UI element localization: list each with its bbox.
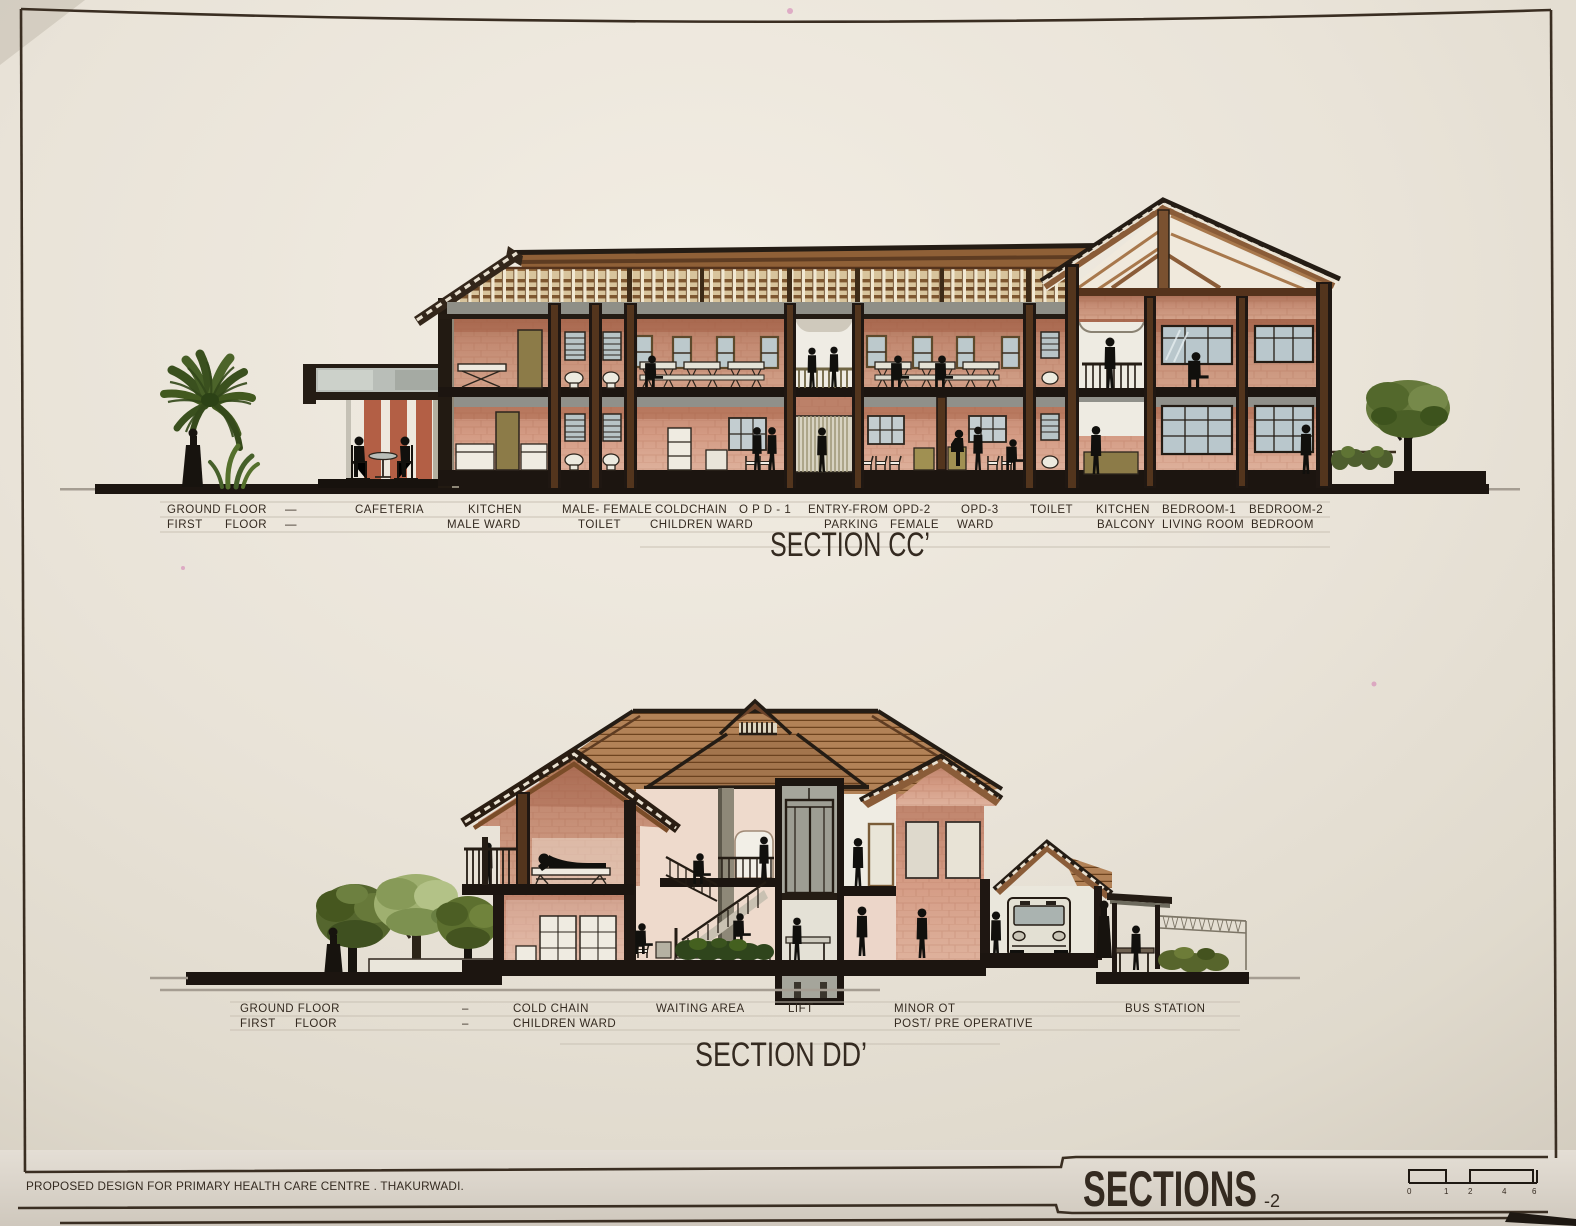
svg-text:MALE- FEMALE: MALE- FEMALE — [562, 504, 652, 516]
svg-text:CHILDREN WARD: CHILDREN WARD — [513, 1018, 616, 1030]
svg-text:–: – — [462, 1003, 469, 1015]
svg-text:OPD-3: OPD-3 — [961, 504, 999, 516]
svg-text:OPD-2: OPD-2 — [893, 504, 931, 516]
svg-text:PROPOSED DESIGN FOR PRIMARY H: PROPOSED DESIGN FOR PRIMARY HEALTH CARE … — [26, 1179, 464, 1193]
svg-text:-2: -2 — [1264, 1191, 1280, 1211]
svg-text:O P D - 1: O P D - 1 — [739, 504, 791, 516]
svg-text:COLDCHAIN: COLDCHAIN — [655, 504, 727, 516]
svg-text:TOILET: TOILET — [578, 519, 621, 531]
svg-text:BALCONY: BALCONY — [1097, 519, 1155, 531]
svg-text:SECTION CC’: SECTION CC’ — [770, 526, 930, 564]
svg-text:1: 1 — [1444, 1187, 1449, 1196]
svg-text:WAITING AREA: WAITING AREA — [656, 1003, 745, 1015]
svg-text:BEDROOM-2: BEDROOM-2 — [1249, 504, 1323, 516]
svg-text:SECTIONS: SECTIONS — [1083, 1161, 1257, 1217]
svg-text:SECTION DD’: SECTION DD’ — [695, 1036, 867, 1074]
svg-text:CAFETERIA: CAFETERIA — [355, 504, 424, 516]
svg-text:—: — — [285, 519, 297, 531]
svg-text:—: — — [285, 504, 297, 516]
svg-text:GROUND FLOOR: GROUND FLOOR — [240, 1003, 340, 1015]
svg-text:MINOR OT: MINOR OT — [894, 1003, 956, 1015]
svg-text:FLOOR: FLOOR — [295, 1018, 337, 1030]
svg-text:FIRST: FIRST — [167, 519, 203, 531]
svg-text:4: 4 — [1502, 1187, 1507, 1196]
svg-text:FLOOR: FLOOR — [225, 519, 267, 531]
svg-text:2: 2 — [1468, 1187, 1473, 1196]
svg-text:ENTRY-FROM: ENTRY-FROM — [808, 504, 888, 516]
svg-text:BUS STATION: BUS STATION — [1125, 1003, 1205, 1015]
svg-text:WARD: WARD — [957, 519, 994, 531]
svg-text:MALE WARD: MALE WARD — [447, 519, 521, 531]
svg-text:FIRST: FIRST — [240, 1018, 276, 1030]
svg-text:0: 0 — [1407, 1187, 1412, 1196]
svg-text:KITCHEN: KITCHEN — [468, 504, 522, 516]
svg-text:LIFT: LIFT — [788, 1003, 814, 1015]
svg-text:COLD CHAIN: COLD CHAIN — [513, 1003, 589, 1015]
svg-text:KITCHEN: KITCHEN — [1096, 504, 1150, 516]
svg-text:LIVING ROOM: LIVING ROOM — [1162, 519, 1244, 531]
svg-text:–: – — [462, 1018, 469, 1030]
svg-text:6: 6 — [1532, 1187, 1537, 1196]
svg-text:BEDROOM: BEDROOM — [1251, 519, 1314, 531]
svg-text:GROUND FLOOR: GROUND FLOOR — [167, 504, 267, 516]
svg-text:BEDROOM-1: BEDROOM-1 — [1162, 504, 1236, 516]
svg-text:TOILET: TOILET — [1030, 504, 1073, 516]
svg-text:POST/ PRE OPERATIVE: POST/ PRE OPERATIVE — [894, 1018, 1033, 1030]
svg-text:CHILDREN WARD: CHILDREN WARD — [650, 519, 753, 531]
